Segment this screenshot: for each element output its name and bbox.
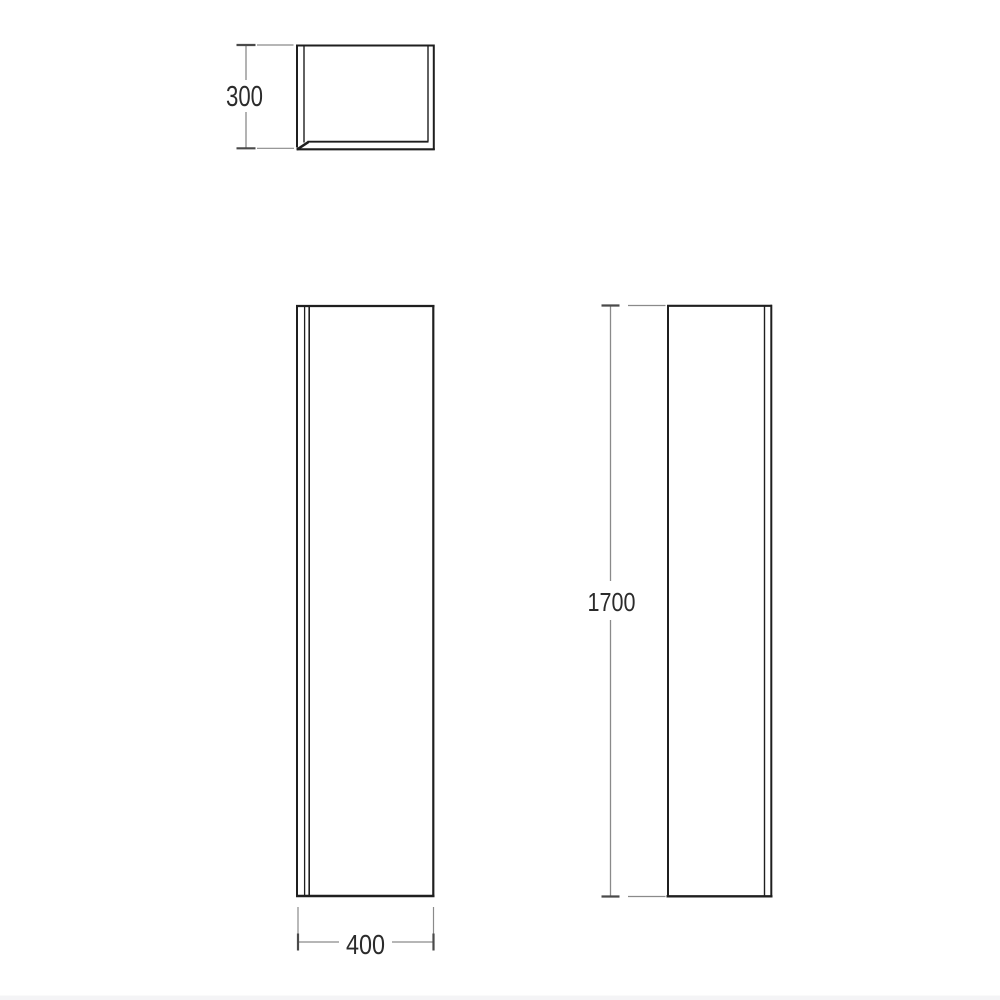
drawing-canvas: 300 400 (0, 0, 1000, 1000)
technical-drawing-svg: 300 400 (0, 0, 1000, 1000)
dimension-width-label: 400 (346, 929, 385, 960)
side-view: 1700 (588, 305, 773, 897)
front-view-outline (296, 305, 435, 897)
dimension-height-label: 1700 (588, 587, 636, 617)
bottom-edge-band (0, 996, 1000, 1000)
dimension-height-1700: 1700 (588, 306, 666, 897)
top-view-outline (296, 45, 435, 151)
dimension-width-400: 400 (298, 907, 434, 960)
front-view: 400 (296, 305, 435, 960)
dimension-depth-label: 300 (226, 81, 263, 113)
top-view: 300 (226, 45, 435, 151)
dimension-depth-300: 300 (226, 45, 294, 148)
side-view-outline (667, 305, 773, 897)
